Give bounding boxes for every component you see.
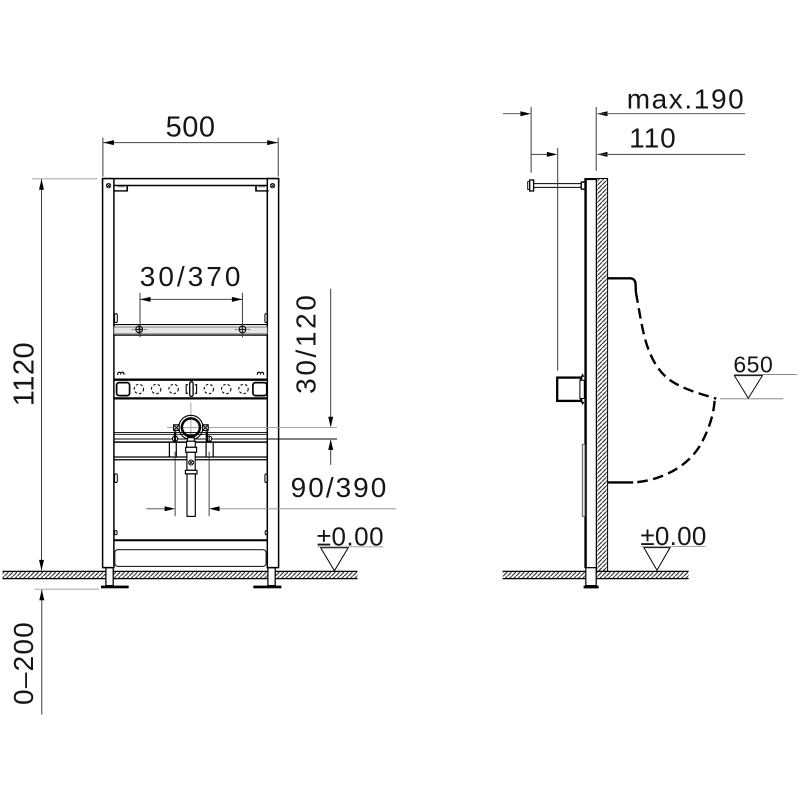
svg-text:30/370: 30/370 (140, 261, 244, 292)
svg-text:1120: 1120 (9, 342, 41, 406)
svg-text:30/120: 30/120 (291, 293, 322, 394)
svg-text:90/390: 90/390 (291, 472, 389, 503)
svg-text:110: 110 (629, 122, 677, 153)
svg-text:0–200: 0–200 (8, 621, 39, 705)
svg-text:500: 500 (166, 111, 216, 143)
svg-text:max.190: max.190 (627, 83, 746, 114)
svg-text:650: 650 (733, 351, 773, 377)
